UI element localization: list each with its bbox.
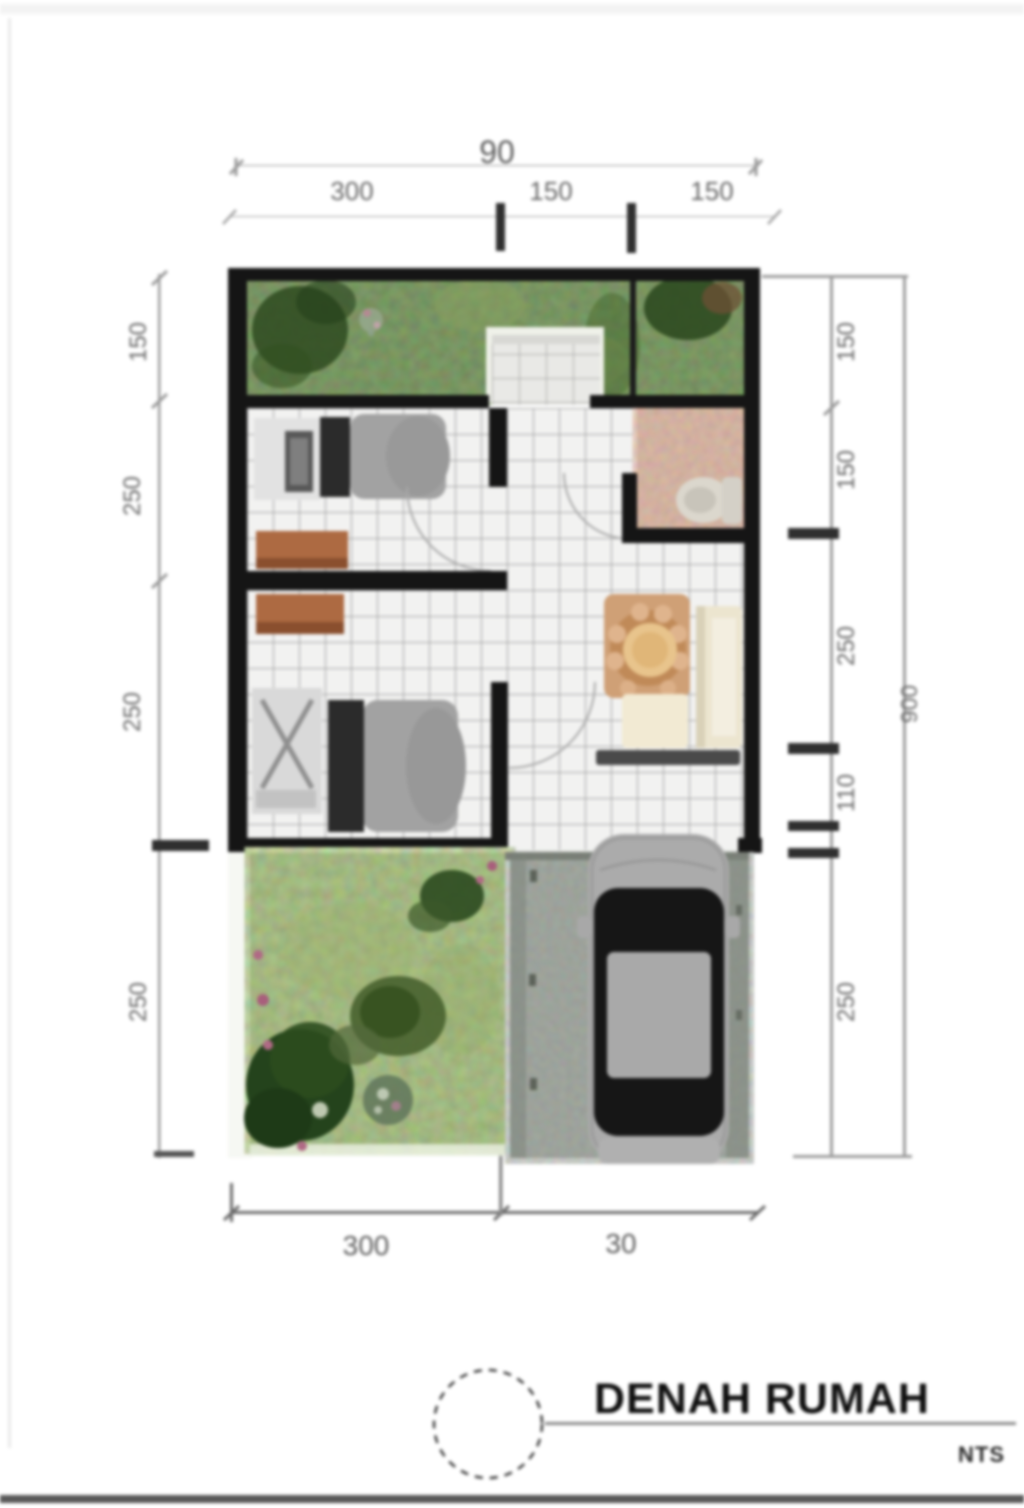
- svg-text:150: 150: [833, 450, 860, 490]
- svg-text:300: 300: [343, 1230, 390, 1261]
- svg-text:110: 110: [833, 774, 860, 812]
- svg-text:DENAH RUMAH: DENAH RUMAH: [594, 1375, 930, 1423]
- svg-text:150: 150: [529, 176, 572, 206]
- svg-text:90: 90: [479, 134, 515, 170]
- svg-text:150: 150: [833, 322, 860, 362]
- svg-text:250: 250: [125, 982, 152, 1022]
- svg-text:250: 250: [119, 476, 146, 516]
- svg-text:150: 150: [690, 176, 733, 206]
- svg-text:NTS: NTS: [958, 1442, 1005, 1467]
- svg-text:300: 300: [330, 176, 373, 206]
- svg-text:250: 250: [833, 626, 860, 666]
- svg-text:250: 250: [119, 692, 146, 732]
- svg-text:900: 900: [896, 685, 922, 723]
- svg-text:150: 150: [125, 322, 152, 362]
- svg-text:250: 250: [833, 982, 860, 1022]
- svg-text:30: 30: [605, 1228, 636, 1259]
